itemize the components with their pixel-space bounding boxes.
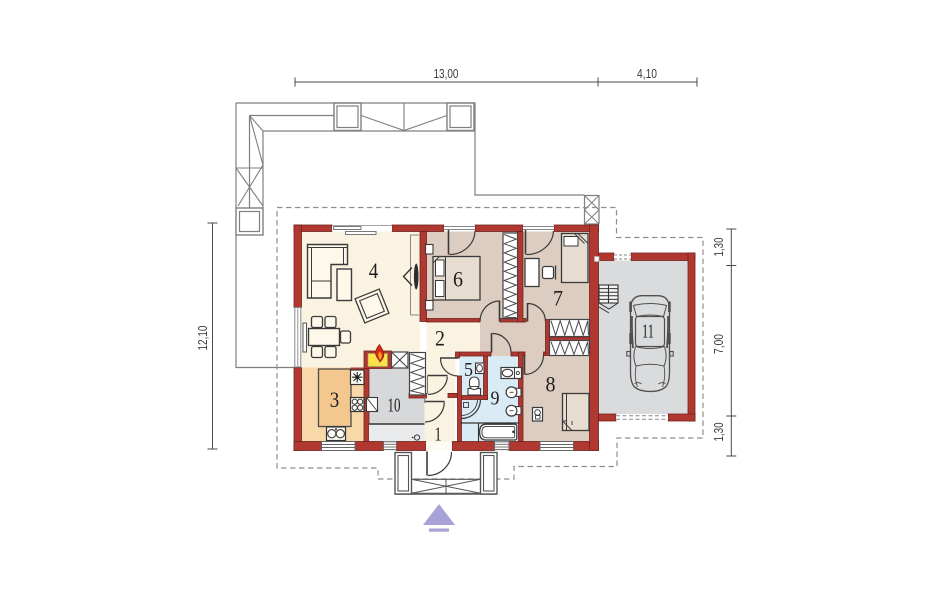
svg-text:5: 5 xyxy=(464,359,473,381)
svg-text:12,10: 12,10 xyxy=(195,326,210,351)
svg-text:4: 4 xyxy=(369,258,379,283)
svg-text:7: 7 xyxy=(553,286,563,311)
svg-text:4,10: 4,10 xyxy=(637,66,657,81)
svg-text:7,00: 7,00 xyxy=(711,334,726,354)
svg-text:3: 3 xyxy=(330,387,340,412)
svg-text:9: 9 xyxy=(491,388,500,410)
svg-text:6: 6 xyxy=(453,267,463,292)
svg-text:1,30: 1,30 xyxy=(711,238,726,257)
svg-text:13,00: 13,00 xyxy=(434,66,459,81)
svg-text:8: 8 xyxy=(546,372,556,397)
svg-text:10: 10 xyxy=(388,395,401,417)
svg-text:1,30: 1,30 xyxy=(711,423,726,442)
svg-text:1: 1 xyxy=(435,424,442,446)
svg-text:2: 2 xyxy=(435,326,445,351)
svg-text:11: 11 xyxy=(642,321,654,343)
